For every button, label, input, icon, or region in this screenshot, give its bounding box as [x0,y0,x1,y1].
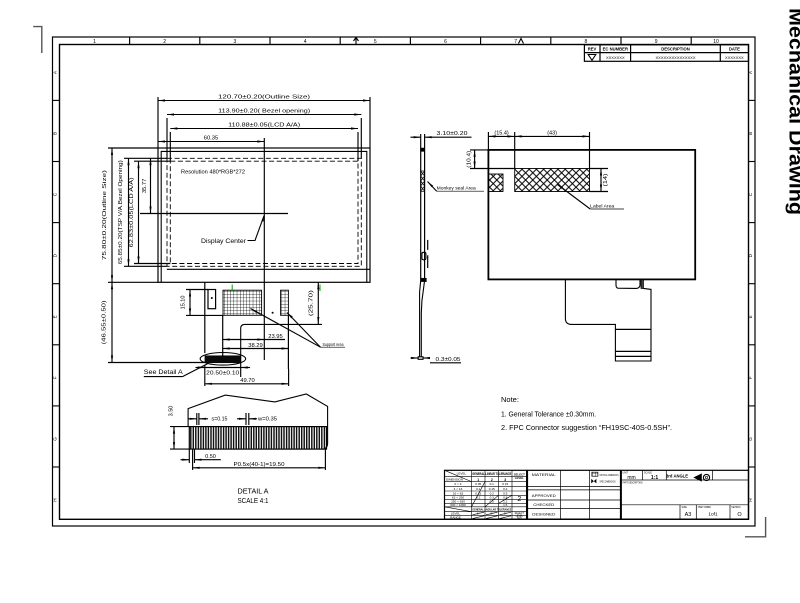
svg-text:0.15: 0.15 [489,487,495,491]
svg-text:F: F [748,376,753,379]
svg-text:0 < 4: 0 < 4 [455,482,462,486]
svg-text:B: B [52,132,57,135]
svg-text:(14): (14) [603,173,609,186]
svg-text:630 < 1000: 630 < 1000 [450,503,466,507]
svg-text:s=0.15: s=0.15 [212,417,228,423]
svg-text:REV: REV [588,47,597,52]
svg-text:20.50±0.10: 20.50±0.10 [206,371,239,377]
svg-text:DESIGNED: DESIGNED [532,513,555,517]
svg-text:75.80±0.20(Outline Size): 75.80±0.20(Outline Size) [102,170,108,260]
svg-text:LEVEL: LEVEL [515,476,524,480]
svg-text:Support Area: Support Area [323,342,345,347]
svg-text:6: 6 [444,39,447,45]
svg-text:(10.4): (10.4) [467,150,473,167]
svg-text:65.85±0.20(TSP V/A.Bezel Openi: 65.85±0.20(TSP V/A.Bezel Opening) [118,160,124,264]
svg-text:A3: A3 [685,512,692,518]
svg-text:XXXXXXXXXXXXXXX: XXXXXXXXXXXXXXX [655,55,695,60]
svg-text:3: 3 [234,39,237,45]
svg-text:0.05: 0.05 [475,482,481,486]
svg-text:1: 1 [93,39,96,45]
svg-text:2. FPC Connector suggestion “: 2. FPC Connector suggestion “FH19SC-40S-… [501,423,672,432]
svg-text:XXXXXXX: XXXXXXX [725,55,744,60]
svg-text:(46.55±0.50): (46.55±0.50) [102,300,108,344]
svg-text:110.88±0.05(LCD A/A): 110.88±0.05(LCD A/A) [228,123,300,129]
svg-text:5: 5 [374,39,377,45]
svg-text:DETAIL A: DETAIL A [238,489,269,496]
svg-text:(25.70): (25.70) [308,290,314,316]
svg-text:3.50: 3.50 [169,406,175,417]
svg-text:Resolution 480*RGB*272: Resolution 480*RGB*272 [181,170,245,176]
svg-text:1:1: 1:1 [651,475,658,481]
svg-text:35.77: 35.77 [142,179,148,194]
svg-text:APPROVED: APPROVED [532,494,556,498]
svg-text:G: G [52,437,57,441]
svg-text:60.35: 60.35 [204,136,219,142]
svg-text:(43): (43) [547,131,557,137]
svg-text:1of1: 1of1 [708,512,718,518]
svg-text:F: F [52,376,57,379]
svg-text:SHEET NUMBER: SHEET NUMBER [698,506,711,509]
svg-text:DATE: DATE [729,47,740,52]
svg-text:1.5: 1.5 [503,503,508,507]
svg-text:GENERAL LINEAR TOLERANCE: GENERAL LINEAR TOLERANCE [472,472,511,476]
svg-text:0.2: 0.2 [503,487,508,491]
svg-text:(15.4): (15.4) [494,131,509,137]
svg-text:CHECKED: CHECKED [533,503,554,507]
svg-text:0.15: 0.15 [502,482,508,486]
svg-text:Mechanical Drawing: Mechanical Drawing [785,8,800,215]
svg-text:4 < 16: 4 < 16 [454,487,463,491]
svg-text:SPEC DIMENSION: SPEC DIMENSION [600,480,616,483]
svg-text:49.70: 49.70 [240,378,255,384]
svg-text:7: 7 [514,39,517,45]
svg-text:4: 4 [304,39,307,45]
svg-text:XXXXXXX: XXXXXXX [606,55,625,60]
svg-text:2: 2 [517,496,521,503]
svg-text:REVISION: REVISION [732,506,741,509]
svg-text:15.10: 15.10 [181,296,187,310]
svg-text:E: E [52,315,57,318]
svg-text:1. General Tolerance ±0.30mm.: 1. General Tolerance ±0.30mm. [501,410,596,419]
svg-text:PART DESCRIPTION: PART DESCRIPTION [623,480,643,484]
svg-text:MATERIAL: MATERIAL [532,473,556,477]
svg-text:See Detail A: See Detail A [144,370,183,376]
svg-text:DESCRIPTION: DESCRIPTION [661,47,690,52]
svg-text:N/A: N/A [517,516,522,520]
svg-text:mm: mm [627,475,635,481]
svg-text:0.50: 0.50 [205,454,216,460]
svg-text:DIMENSION: DIMENSION [446,478,463,482]
svg-text:Monkey seal Area: Monkey seal Area [437,186,477,191]
svg-text:0.1: 0.1 [476,487,481,491]
svg-text:G: G [748,437,753,441]
svg-text:EC NUMBER: EC NUMBER [603,47,628,52]
svg-text:62.83±0.05(LCD A/A): 62.83±0.05(LCD A/A) [129,177,135,247]
svg-text:0.5: 0.5 [490,500,495,504]
svg-text:E: E [748,315,753,318]
svg-text:CRITICAL DIMENSION: CRITICAL DIMENSION [600,474,619,477]
svg-text:Display Center: Display Center [201,239,246,245]
svg-text:Note:: Note: [501,395,519,404]
svg-text:3rd ANGLE: 3rd ANGLE [666,474,688,479]
svg-text:Label Area: Label Area [590,204,615,209]
svg-text:O: O [737,512,742,518]
svg-text:LEVEL: LEVEL [457,472,467,476]
svg-text:0.1: 0.1 [490,482,495,486]
svg-text:P0.5x(40-1)=19.50: P0.5x(40-1)=19.50 [234,462,285,468]
svg-text:H: H [52,498,57,501]
svg-text:2: 2 [163,39,166,45]
svg-text:B: B [748,132,753,135]
svg-text:38.29: 38.29 [248,343,263,349]
svg-text:SCALE 4:1: SCALE 4:1 [238,498,269,505]
svg-text:RANGE: RANGE [450,515,461,519]
svg-text:113.90±0.20( Bezel opening): 113.90±0.20( Bezel opening) [218,109,310,115]
svg-text:120.70±0.20(Outline Size): 120.70±0.20(Outline Size) [218,95,310,101]
svg-text:w=0.35: w=0.35 [257,417,277,423]
svg-text:3.10±0.20: 3.10±0.20 [437,131,468,137]
svg-text:0.3±0.05: 0.3±0.05 [436,357,461,363]
svg-text:SIZE: SIZE [682,506,688,509]
svg-text:23.95: 23.95 [268,334,283,340]
